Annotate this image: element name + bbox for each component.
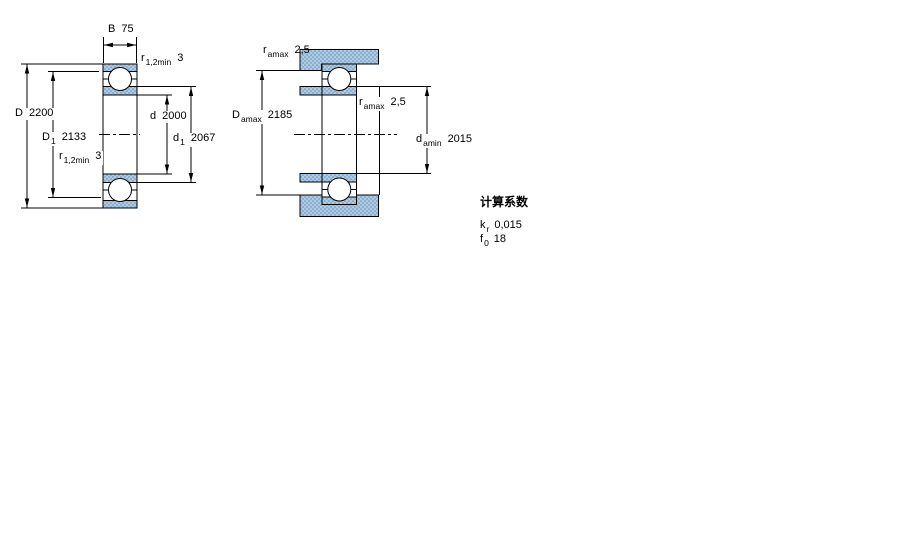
ball-top xyxy=(328,68,351,91)
label-value: 2067 xyxy=(191,133,215,144)
label-subscript: amax xyxy=(268,50,289,59)
label-symbol: D xyxy=(15,108,23,119)
ball-top xyxy=(109,68,132,91)
calc-factor-kr: kr0,015 xyxy=(480,220,522,233)
label-subscript: amin xyxy=(423,139,441,148)
label-symbol: d xyxy=(150,111,156,122)
label-symbol: r xyxy=(263,45,267,56)
dim-label-chamfer-r-top: r1,2min3 xyxy=(141,53,183,66)
label-symbol: D xyxy=(42,132,50,143)
dim-label-shoulder-D1: D12133 xyxy=(40,132,88,146)
label-value: 75 xyxy=(121,24,133,35)
calc-factor-f0: f018 xyxy=(480,234,506,247)
factor-value: 18 xyxy=(494,234,506,245)
label-subscript: 1,2min xyxy=(146,58,172,67)
dim-label-shoulder-d1: d12067 xyxy=(171,133,217,147)
label-symbol: d xyxy=(173,133,179,144)
dim-label-bore-d: d2000 xyxy=(148,111,189,123)
label-subscript: 1,2min xyxy=(64,156,90,165)
factor-symbol: k xyxy=(480,220,486,231)
label-symbol: r xyxy=(141,53,145,64)
shaft-shoulder-bottom xyxy=(300,174,322,183)
label-subscript: 1 xyxy=(180,138,185,147)
label-value: 2185 xyxy=(268,110,292,121)
label-value: 2200 xyxy=(29,108,53,119)
right-figure xyxy=(256,50,431,217)
label-symbol: d xyxy=(416,134,422,145)
factor-subscript: r xyxy=(487,225,490,234)
label-symbol: B xyxy=(108,24,115,35)
ball-bottom xyxy=(109,179,132,202)
label-subscript: amax xyxy=(241,115,262,124)
label-value: 2000 xyxy=(162,111,186,122)
dim-label-housing-abutment-Da: Damax2185 xyxy=(230,110,294,124)
bearing-dimension-drawing: B75 r1,2min3 D2200 D12133 r1,2min3 d2000… xyxy=(0,0,900,560)
label-value: 3 xyxy=(95,151,101,162)
dim-label-shaft-abutment-da: damin2015 xyxy=(414,134,474,148)
factor-subscript: 0 xyxy=(484,239,489,248)
dim-label-outer-diameter-D: D2200 xyxy=(13,108,55,120)
label-value: 2,5 xyxy=(294,45,309,56)
technical-drawing-canvas xyxy=(0,0,900,560)
label-value: 3 xyxy=(177,53,183,64)
factor-value: 0,015 xyxy=(494,220,522,231)
dim-label-width-B: B75 xyxy=(108,24,134,35)
label-subscript: 1 xyxy=(51,137,56,146)
label-subscript: amax xyxy=(364,102,385,111)
label-symbol: D xyxy=(232,110,240,121)
label-value: 2015 xyxy=(448,134,472,145)
calculation-factors-heading: 计算系数 xyxy=(480,196,528,208)
ball-bottom xyxy=(328,178,351,201)
dim-label-fillet-ra-mid: ramax2,5 xyxy=(357,97,408,111)
shaft-shoulder-top xyxy=(300,87,322,96)
left-bearing-cross-section xyxy=(103,64,137,208)
label-symbol: r xyxy=(359,97,363,108)
factor-symbol: f xyxy=(480,234,483,245)
dim-label-chamfer-r-bottom: r1,2min3 xyxy=(57,151,103,165)
label-value: 2133 xyxy=(62,132,86,143)
dim-label-fillet-ra-top: ramax2,5 xyxy=(263,45,310,58)
label-symbol: r xyxy=(59,151,63,162)
label-value: 2,5 xyxy=(390,97,405,108)
